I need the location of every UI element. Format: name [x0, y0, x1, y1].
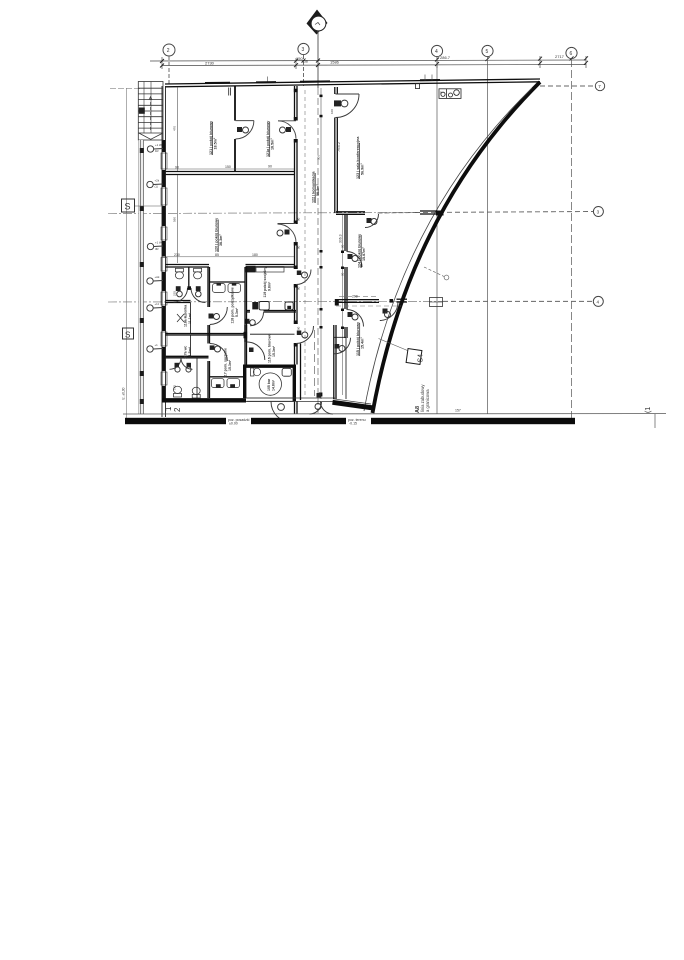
- svg-text:470: 470: [173, 126, 177, 131]
- svg-text:3: 3: [302, 47, 305, 53]
- svg-text:1: 1: [164, 406, 173, 411]
- svg-text:58.3m²: 58.3m²: [316, 184, 320, 196]
- svg-text:11.1m²: 11.1m²: [188, 312, 192, 324]
- svg-text:rz. ±0,00: rz. ±0,00: [122, 387, 126, 400]
- svg-text:18.5m²: 18.5m²: [271, 138, 275, 150]
- svg-text:118 pom. porządkowe: 118 pom. porządkowe: [231, 287, 235, 323]
- svg-text:3R: 3R: [155, 247, 159, 251]
- svg-text:90: 90: [341, 272, 345, 276]
- svg-text:180: 180: [252, 253, 258, 257]
- svg-text:1R: 1R: [155, 149, 159, 153]
- svg-text:9.8m²: 9.8m²: [268, 281, 272, 291]
- svg-text:90: 90: [268, 165, 272, 169]
- svg-text:14.8m²: 14.8m²: [272, 379, 276, 391]
- svg-text:5.3m²: 5.3m²: [235, 307, 239, 317]
- svg-text:+1 W: +1 W: [155, 241, 162, 245]
- svg-text:764.2: 764.2: [336, 141, 341, 152]
- svg-text:105 bar: 105 bar: [267, 378, 271, 391]
- svg-text:119 pokój socjalny: 119 pokój socjalny: [263, 267, 267, 298]
- svg-text:(1): (1): [155, 185, 158, 189]
- svg-text:1586: 1586: [330, 60, 340, 65]
- svg-text:+1 W: +1 W: [155, 143, 162, 147]
- svg-text:90: 90: [297, 217, 301, 221]
- svg-text:S: S: [125, 202, 131, 212]
- svg-text:150: 150: [225, 165, 231, 169]
- svg-text:2: 2: [173, 407, 182, 412]
- svg-text:15.87m²: 15.87m²: [362, 246, 366, 261]
- svg-text:38.3m²: 38.3m²: [219, 234, 223, 246]
- svg-text:90: 90: [297, 326, 301, 330]
- svg-text:18.5m²: 18.5m²: [214, 137, 218, 149]
- svg-text:S: S: [125, 331, 130, 340]
- svg-text:+Ak: +Ak: [155, 275, 160, 279]
- svg-text:306.3: 306.3: [339, 234, 343, 243]
- svg-text:85: 85: [215, 253, 219, 257]
- svg-text:+2k: +2k: [155, 179, 160, 183]
- svg-text:S4: S4: [418, 354, 425, 363]
- svg-text:306: 306: [317, 155, 321, 160]
- svg-text:175: 175: [173, 385, 177, 390]
- svg-text:235: 235: [173, 291, 177, 296]
- svg-text:157: 157: [455, 409, 461, 413]
- svg-text:a granicowa: a granicowa: [425, 389, 430, 412]
- svg-text:15.4m²: 15.4m²: [361, 337, 365, 349]
- svg-text:15.3m²: 15.3m²: [272, 345, 276, 357]
- svg-text:±0.00: ±0.00: [229, 422, 238, 426]
- svg-text:90: 90: [297, 245, 301, 249]
- svg-text:90: 90: [341, 244, 345, 248]
- svg-text:2717: 2717: [555, 54, 565, 59]
- svg-text:15.3m²: 15.3m²: [228, 359, 232, 371]
- svg-text:56.9m²: 56.9m²: [361, 163, 365, 175]
- svg-text:+1: +1: [155, 343, 159, 347]
- svg-text:(1: (1: [645, 407, 652, 413]
- svg-text:6: 6: [570, 51, 573, 57]
- svg-text:158: 158: [302, 60, 308, 64]
- svg-text:4: 4: [435, 49, 438, 55]
- svg-text:5: 5: [486, 49, 489, 55]
- svg-text:11.5m²: 11.5m²: [188, 346, 192, 358]
- svg-text:2: 2: [167, 48, 170, 54]
- svg-text:117a wc: 117a wc: [184, 346, 188, 359]
- svg-text:2730: 2730: [205, 61, 215, 66]
- svg-text:590: 590: [173, 217, 177, 222]
- svg-text:286.7: 286.7: [440, 55, 451, 60]
- svg-text:90: 90: [175, 165, 179, 169]
- svg-text:+1z: +1z: [155, 302, 160, 306]
- svg-text:230: 230: [174, 253, 180, 257]
- svg-text:116 pom. biurowe: 116 pom. biurowe: [268, 334, 272, 363]
- svg-text:-0.15: -0.15: [349, 422, 357, 426]
- svg-text:118a łazienka: 118a łazienka: [184, 305, 188, 327]
- svg-text:100: 100: [330, 109, 334, 114]
- svg-text:90: 90: [297, 286, 301, 290]
- svg-text:298: 298: [352, 295, 358, 299]
